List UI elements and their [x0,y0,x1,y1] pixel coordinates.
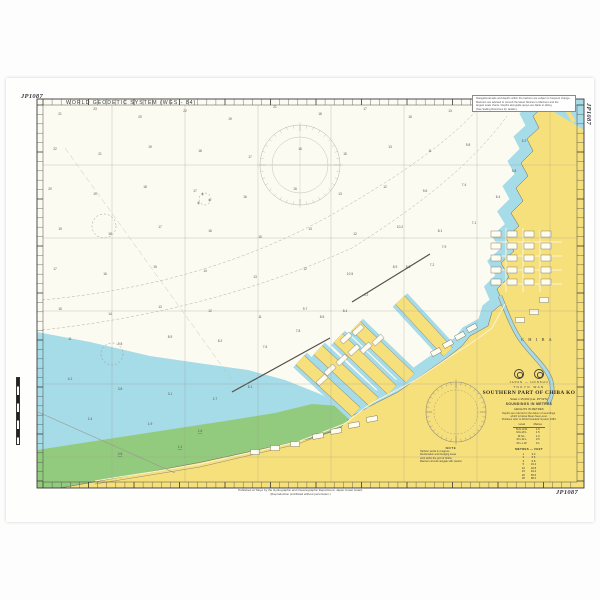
svg-text:3.8: 3.8 [118,387,123,391]
svg-text:22: 22 [183,109,187,113]
soundings-units-line: SOUNDINGS IN METRES [479,402,579,406]
svg-text:4.2: 4.2 [68,377,73,381]
attribution-line: (Reproduction prohibited without permiss… [190,493,411,497]
svg-text:13: 13 [308,227,312,231]
svg-text:17: 17 [53,267,57,271]
svg-text:12: 12 [353,232,357,236]
svg-text:20: 20 [138,115,142,119]
svg-text:15: 15 [408,115,412,119]
svg-text:21: 21 [273,105,277,109]
conversion-table-title: METRES — FEET [479,447,579,451]
scale-statement: Scale 1:15,000 (Lat. 35°32′N) [479,397,579,401]
svg-text:18: 18 [318,112,322,116]
svg-text:15: 15 [293,187,297,191]
svg-text:19: 19 [58,227,62,231]
chart-title-block: JAPAN — HONSHU TOKYO WAN SOUTHERN PART O… [479,369,579,481]
svg-text:15: 15 [58,307,62,311]
svg-text:11: 11 [428,149,432,153]
svg-text:10.5: 10.5 [347,272,353,276]
chart-title: SOUTHERN PART OF CHIBA KO [479,390,579,396]
svg-text:13: 13 [448,109,452,113]
svg-text:3.1: 3.1 [168,392,173,396]
svg-text:8.1: 8.1 [438,229,443,233]
svg-text:14: 14 [108,312,112,316]
svg-text:13: 13 [338,192,342,196]
svg-text:8.5: 8.5 [320,315,325,319]
publisher-attribution: Published at Tokyo by the Hydrographic a… [190,489,411,497]
svg-text:18: 18 [108,232,112,236]
svg-text:13: 13 [253,275,257,279]
svg-text:9.6: 9.6 [423,189,428,193]
svg-text:16: 16 [208,229,212,233]
svg-text:15: 15 [343,152,347,156]
margin-scale-bar [16,377,20,445]
svg-text:2.7: 2.7 [213,397,218,401]
nation-line: JAPAN — HONSHU [479,380,579,384]
hydrographic-office-seal-icon [514,369,524,379]
svg-text:0.8: 0.8 [118,452,123,456]
svg-text:9.8: 9.8 [118,342,123,346]
svg-text:8.2: 8.2 [218,339,223,343]
chart-number-top-left: JP1087 [21,93,43,100]
chart-number-right-edge: JP1087 [585,103,592,125]
svg-text:10.2: 10.2 [397,225,403,229]
svg-text:17: 17 [248,155,252,159]
svg-text:7.8: 7.8 [296,329,301,333]
svg-text:1.9: 1.9 [148,422,153,426]
svg-text:21: 21 [98,152,102,156]
svg-text:15: 15 [153,265,157,269]
svg-text:7.2: 7.2 [430,263,435,267]
svg-text:13: 13 [388,145,392,149]
svg-text:11: 11 [68,337,72,341]
svg-text:7.9: 7.9 [442,245,447,249]
city-label-chiba: C H I B A [521,337,553,342]
svg-text:19: 19 [148,145,152,149]
svg-text:8.4: 8.4 [343,309,348,313]
svg-text:6.4: 6.4 [496,195,501,199]
svg-text:2.4: 2.4 [88,417,93,421]
note-line: Navigational aids and depths within the … [476,97,572,101]
region-line: TOKYO WAN [479,385,579,389]
svg-text:5.2: 5.2 [522,139,527,143]
svg-text:9.2: 9.2 [364,293,369,297]
svg-text:17: 17 [363,107,367,111]
svg-text:16: 16 [103,272,107,276]
tidal-levels-table: Level Metres M.H.H.W.1.9M.H.W.L.1.5M.S.L… [513,423,545,445]
svg-text:8.9: 8.9 [168,335,173,339]
svg-text:12: 12 [303,267,307,271]
source-caution-note-box: Navigational aids and depths within the … [472,95,576,112]
heights-units-line: HEIGHTS IN METRES [479,407,579,411]
coast-guard-seal-icon [534,369,544,379]
svg-text:1.6: 1.6 [198,429,203,433]
chart-map-graphics: 2123202219211817151311222119181716151311… [0,0,600,600]
svg-text:8.9: 8.9 [393,265,398,269]
note-line: (See Sailing Directions for details.) [476,108,572,112]
svg-text:7.1: 7.1 [472,221,477,225]
geodetic-datum-note: WORLD GEODETIC SYSTEM (WGS - 84) [66,100,196,106]
svg-text:12: 12 [208,309,212,313]
svg-text:16: 16 [243,195,247,199]
svg-text:8.8: 8.8 [406,265,411,269]
svg-text:23: 23 [93,107,97,111]
svg-text:5.8: 5.8 [512,169,517,173]
svg-text:19: 19 [93,192,97,196]
svg-text:9.8: 9.8 [466,143,471,147]
svg-text:17: 17 [193,189,197,193]
svg-text:18: 18 [143,185,147,189]
nautical-chart-scan: 2123202219211817151311222119181716151311… [0,0,600,600]
svg-text:7.4: 7.4 [462,183,467,187]
svg-text:21: 21 [58,112,62,116]
svg-text:14: 14 [203,269,207,273]
svg-text:11: 11 [258,315,262,319]
chart-number-bottom-right: JP1087 [556,489,578,496]
svg-text:13: 13 [158,305,162,309]
svg-text:19: 19 [228,117,232,121]
svg-text:5.1: 5.1 [248,385,253,389]
svg-text:1.2: 1.2 [178,445,183,449]
svg-text:12: 12 [383,185,387,189]
harbour-works-note: NOTE Harbour works in progress. Reclamat… [420,446,482,463]
svg-text:18: 18 [198,149,202,153]
conversion-table: 13.326.639.8516.41032.81549.22065.63098.… [519,453,539,481]
datum-note-lines: Depths are referred to the datum of soun… [479,412,579,422]
svg-text:15: 15 [258,235,262,239]
svg-text:20: 20 [48,187,52,191]
svg-text:22: 22 [53,147,57,151]
svg-text:16: 16 [298,147,302,151]
agency-emblems [479,369,579,379]
svg-text:7.6: 7.6 [263,345,268,349]
svg-text:9.7: 9.7 [303,307,308,311]
svg-text:17: 17 [158,225,162,229]
